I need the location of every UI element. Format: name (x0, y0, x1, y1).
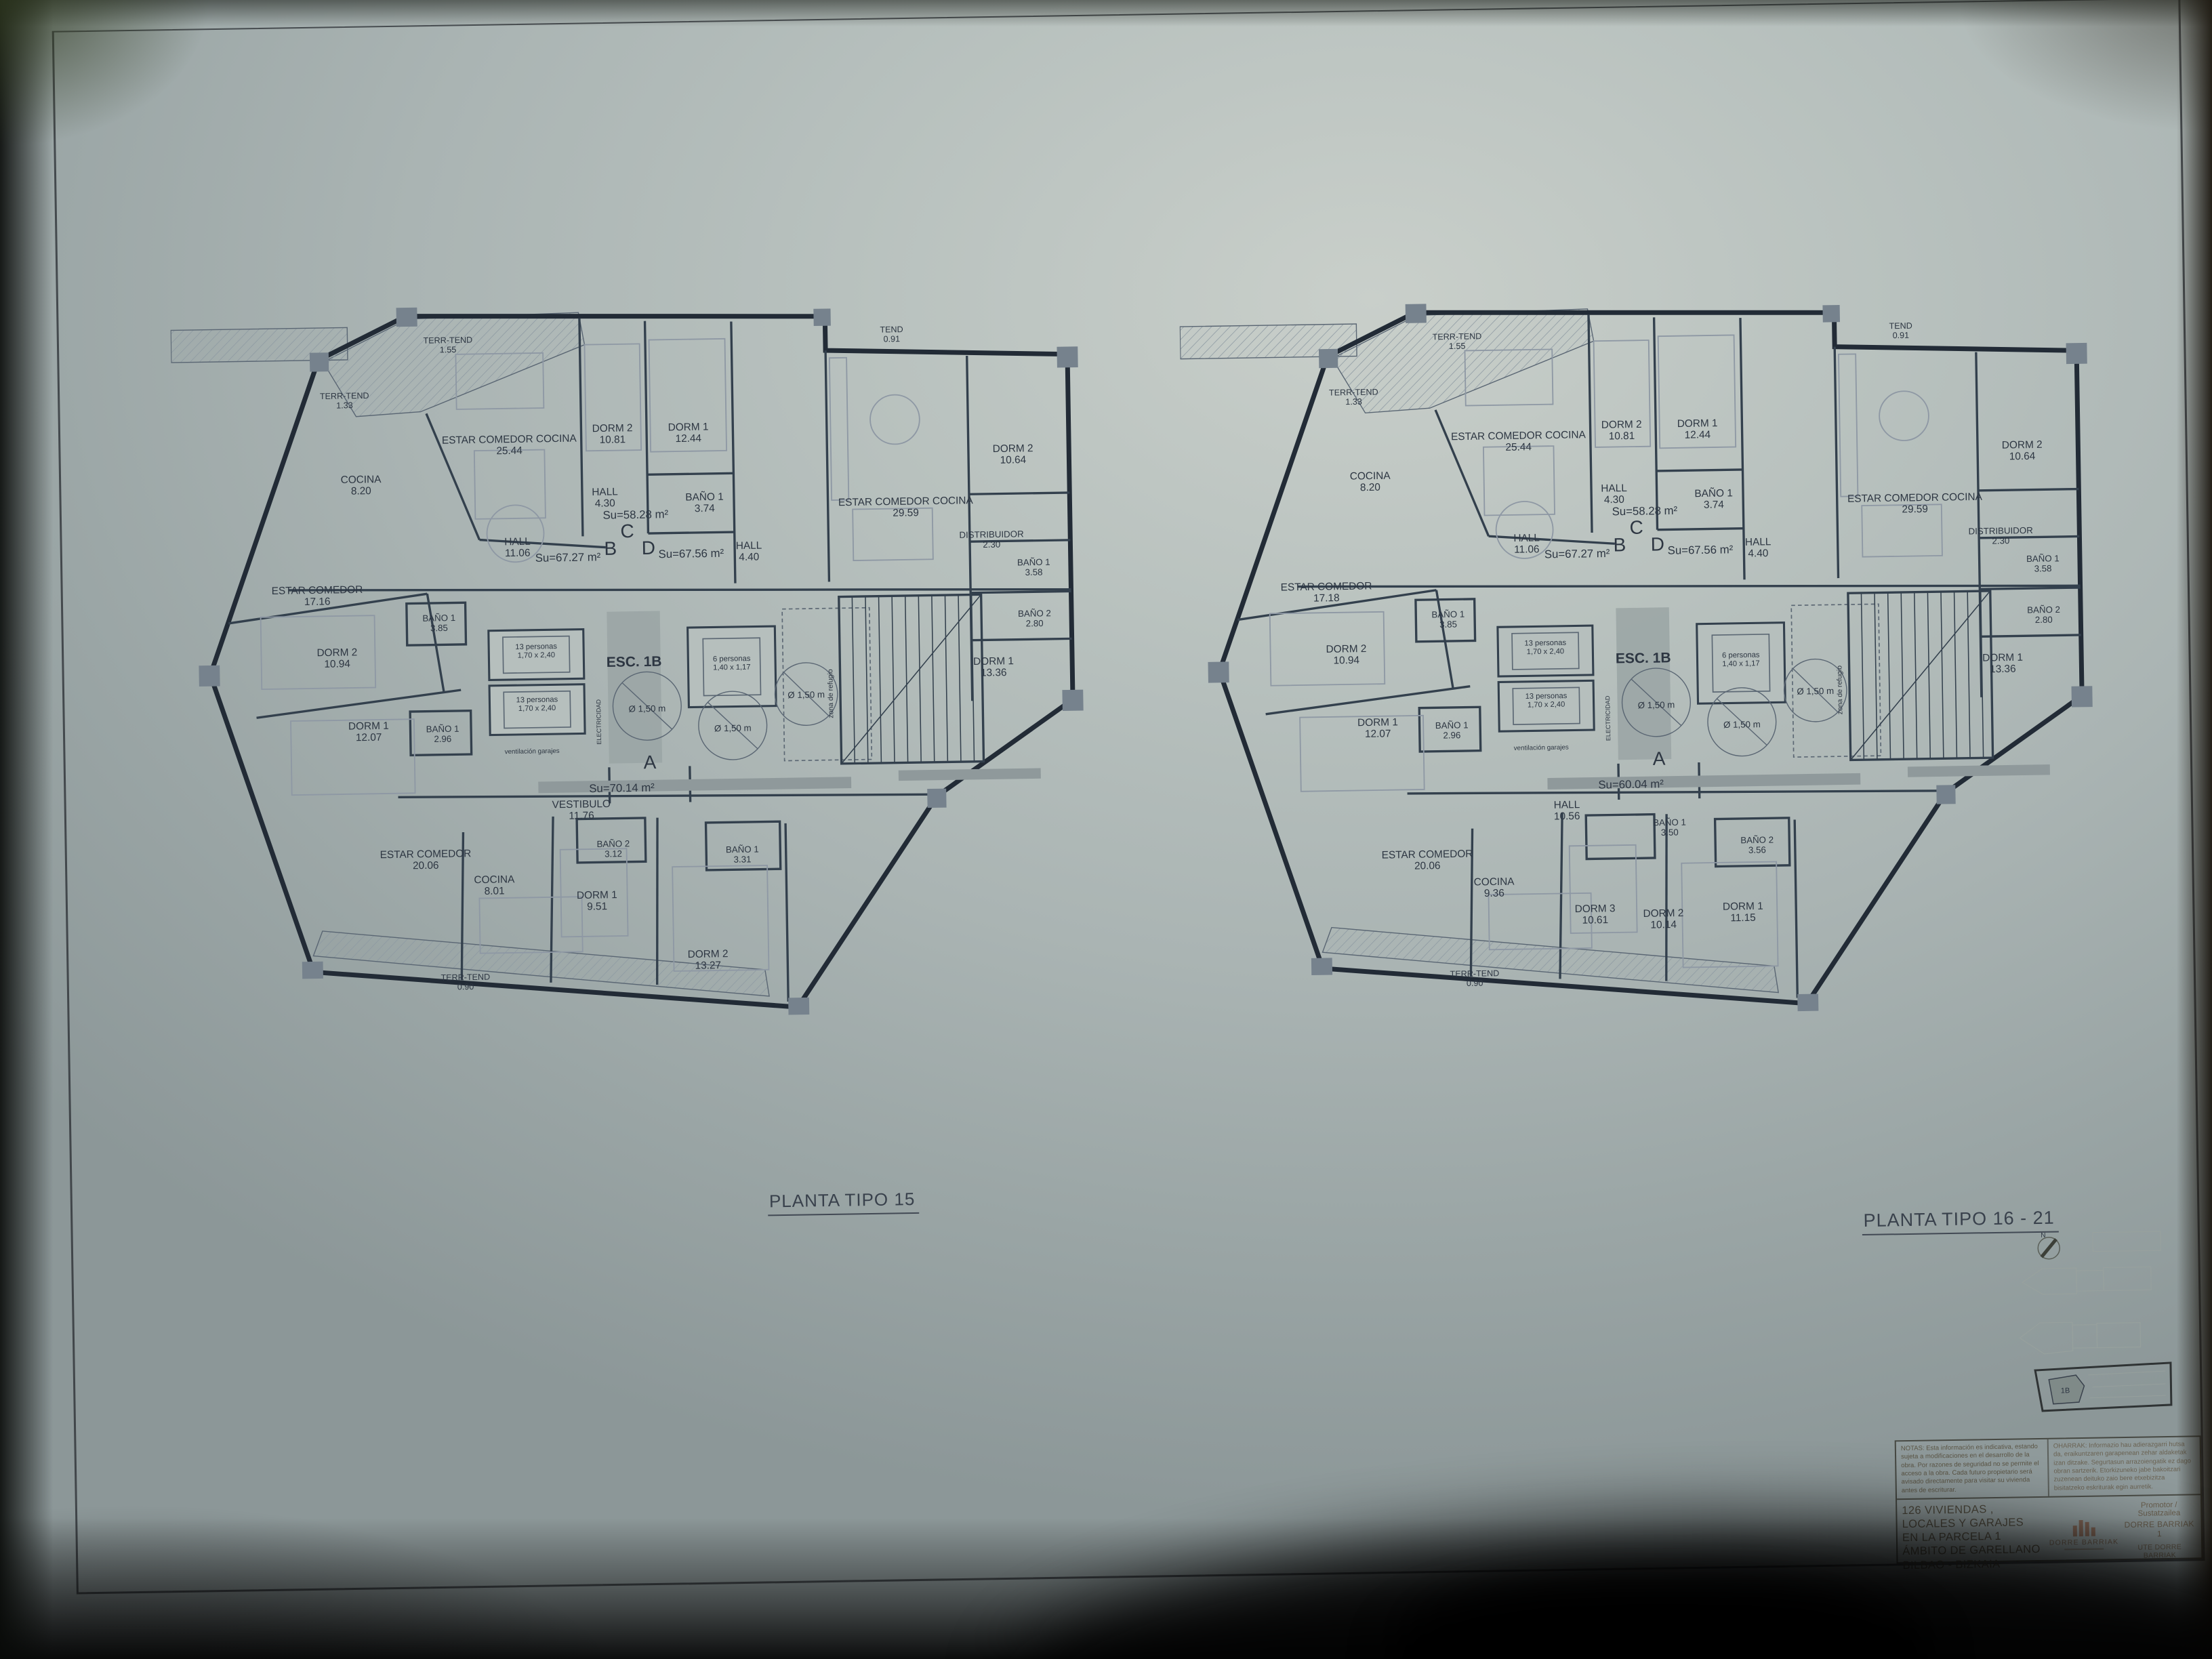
room-label: BAÑO 13.74 (1694, 487, 1733, 511)
room-label: D (641, 537, 655, 558)
svg-text:N: N (2041, 1232, 2045, 1240)
room-label: HALL11.06 (1513, 532, 1540, 555)
floor-plan-svg-15: ESTAR COMEDOR COCINA25.44DORM 210.81DORM… (170, 291, 1130, 1049)
room-label: Su=58.28 m² (1612, 504, 1677, 518)
notes-spanish: NOTAS: Esta información es indicativa, e… (1896, 1439, 2049, 1499)
title-block-notes: NOTAS: Esta información es indicativa, e… (1896, 1437, 2200, 1500)
room-label: ESTAR COMEDOR COCINA25.44 (442, 433, 577, 458)
logo-rule (2064, 1549, 2104, 1551)
blueprint-photo: ESTAR COMEDOR COCINA25.44DORM 210.81DORM… (0, 0, 2212, 1659)
room-label: ventilación garajes (1514, 744, 1569, 752)
room-label: Su=60.04 m² (1598, 777, 1664, 792)
room-label: 13 personas1,70 x 2,40 (1524, 639, 1566, 657)
room-label: BAÑO 22.80 (2027, 605, 2060, 625)
room-label: 13 personas1,70 x 2,40 (516, 695, 558, 713)
room-label: B (604, 538, 617, 559)
room-label: BAÑO 12.96 (426, 724, 459, 744)
room-label: DORM 112.44 (668, 422, 709, 445)
room-label: BAÑO 13.85 (1431, 609, 1465, 630)
room-label: BAÑO 23.56 (1740, 835, 1774, 855)
project-title: 126 VIVIENDAS , LOCALES Y GARAJES EN LA … (1897, 1498, 2047, 1575)
room-label: 6 personas1,40 x 1,17 (713, 655, 751, 672)
room-label: A (643, 752, 656, 773)
room-label: HALL11.06 (504, 536, 531, 559)
site-outline-faint (2018, 1231, 2163, 1354)
room-label: HALL4.40 (1745, 536, 1771, 559)
svg-text:1B: 1B (2061, 1387, 2070, 1395)
room-label: BAÑO 12.96 (1435, 720, 1469, 740)
blueprint-sheet: ESTAR COMEDOR COCINA25.44DORM 210.81DORM… (0, 0, 2212, 1659)
room-label: zona de refugio (827, 669, 835, 718)
room-label: HALL4.30 (1601, 483, 1627, 506)
room-label: DORM 113.36 (1982, 652, 2023, 676)
room-label: DORM 210.64 (2002, 439, 2043, 463)
room-label: C (1629, 517, 1643, 538)
room-label: C (620, 520, 634, 541)
room-label: Su=58.28 m² (602, 508, 668, 522)
room-label: Su=67.56 m² (658, 547, 724, 561)
title-block-bottom: 126 VIVIENDAS , LOCALES Y GARAJES EN LA … (1897, 1495, 2202, 1575)
room-label: ESC. 1B (607, 654, 662, 670)
room-label: ELECTRICIDAD (1604, 695, 1612, 741)
promoter-ute: UTE DORRE BARRIAK (2123, 1542, 2196, 1560)
room-label: HALL4.30 (592, 486, 618, 509)
room-label: ELECTRICIDAD (595, 699, 602, 744)
floor-plan-svg-16-21: ESTAR COMEDOR COCINA25.44DORM 210.81DORM… (1179, 287, 2139, 1046)
room-label: COCINA8.20 (1350, 470, 1391, 494)
room-label: DORM 210.64 (993, 443, 1033, 466)
room-label: TEND0.91 (1889, 321, 1912, 341)
room-label: A (1652, 748, 1665, 769)
room-label: DORM 210.94 (1326, 643, 1366, 667)
logo-text: DORRE BARRIAK (2049, 1538, 2119, 1548)
room-label: Su=67.27 m² (1544, 547, 1610, 561)
room-label: ESTAR COMEDOR COCINA25.44 (1451, 429, 1586, 454)
room-label: DORM 112.07 (348, 720, 389, 744)
room-label: BAÑO 13.85 (422, 613, 455, 633)
room-label: ESTAR COMEDOR COCINA29.59 (1847, 491, 1983, 516)
logo-dorre-barriak: DORRE BARRIAK (2045, 1496, 2123, 1572)
room-label: ESTAR COMEDOR COCINA29.59 (838, 495, 974, 520)
room-label: BAÑO 13.74 (685, 491, 724, 515)
floor-plan-planta-15: ESTAR COMEDOR COCINA25.44DORM 210.81DORM… (170, 291, 1130, 1049)
room-label: DORM 112.07 (1357, 716, 1398, 740)
north-arrow-icon: N (2038, 1231, 2060, 1258)
room-label: 6 personas1,40 x 1,17 (1722, 651, 1760, 668)
room-label: ESTAR COMEDOR20.06 (1382, 848, 1473, 873)
room-label: BAÑO 13.50 (1653, 817, 1686, 838)
room-label: TEND0.91 (880, 325, 903, 344)
room-label: COCINA9.36 (1474, 876, 1515, 900)
room-label: DORM 113.36 (973, 655, 1014, 679)
promoter-block: Promotor / Sustatzailea DORRE BARRIAK 1 … (2121, 1495, 2202, 1571)
room-label: Ø 1,50 m (787, 689, 825, 700)
room-label: zona de refugio (1836, 665, 1844, 715)
room-label: Ø 1,50 m (1638, 699, 1675, 710)
room-label: BAÑO 22.80 (1018, 608, 1051, 628)
room-label: Ø 1,50 m (714, 723, 752, 734)
room-label: BAÑO 13.58 (1017, 557, 1050, 577)
room-label: D (1651, 533, 1665, 554)
keyplan-parcel: 1B (2035, 1363, 2171, 1411)
room-label: COCINA8.20 (341, 474, 382, 497)
floor-plan-planta-16-21: ESTAR COMEDOR COCINA25.44DORM 210.81DORM… (1179, 287, 2139, 1046)
room-label: ESC. 1B (1616, 650, 1671, 666)
room-label: Su=67.56 m² (1668, 543, 1734, 557)
room-label: BAÑO 13.31 (726, 844, 759, 865)
room-label: DORM 210.14 (1643, 907, 1683, 931)
room-label: DORM 19.51 (577, 889, 617, 913)
room-label: HALL10.56 (1554, 799, 1580, 822)
room-label: DORM 210.94 (316, 647, 357, 670)
room-label: ventilación garajes (505, 747, 560, 756)
towers-logo-icon (2072, 1519, 2095, 1537)
room-label: ESTAR COMEDOR20.06 (380, 848, 472, 872)
room-label: DORM 310.61 (1575, 903, 1616, 926)
room-label: Su=67.27 m² (535, 550, 601, 565)
promoter-label: Promotor / Sustatzailea (2123, 1500, 2195, 1518)
room-label: Ø 1,50 m (1723, 719, 1761, 730)
key-plan: N 1B (2011, 1226, 2184, 1429)
room-label: DORM 210.81 (1601, 419, 1642, 443)
room-label: Ø 1,50 m (628, 703, 665, 714)
notes-basque: OHARRAK: Informazio hau adierazgarri hut… (2049, 1437, 2200, 1496)
promoter-name: DORRE BARRIAK 1 (2123, 1519, 2196, 1539)
room-label: 13 personas1,70 x 2,40 (1525, 692, 1568, 710)
room-label: 13 personas1,70 x 2,40 (515, 642, 557, 660)
room-label: COCINA8.01 (474, 874, 515, 897)
room-label: DORM 111.15 (1723, 901, 1763, 924)
room-label: HALL4.40 (736, 540, 762, 563)
room-label: Ø 1,50 m (1797, 686, 1834, 697)
plan-title-planta-15: PLANTA TIPO 15 (768, 1189, 920, 1216)
room-label: DORM 112.44 (1677, 417, 1718, 441)
room-label: B (1613, 534, 1626, 555)
title-block: NOTAS: Esta información es indicativa, e… (1895, 1435, 2203, 1563)
room-label: DORM 210.81 (592, 422, 633, 446)
room-label: Su=70.14 m² (589, 781, 655, 796)
room-label: BAÑO 13.58 (2026, 553, 2060, 573)
